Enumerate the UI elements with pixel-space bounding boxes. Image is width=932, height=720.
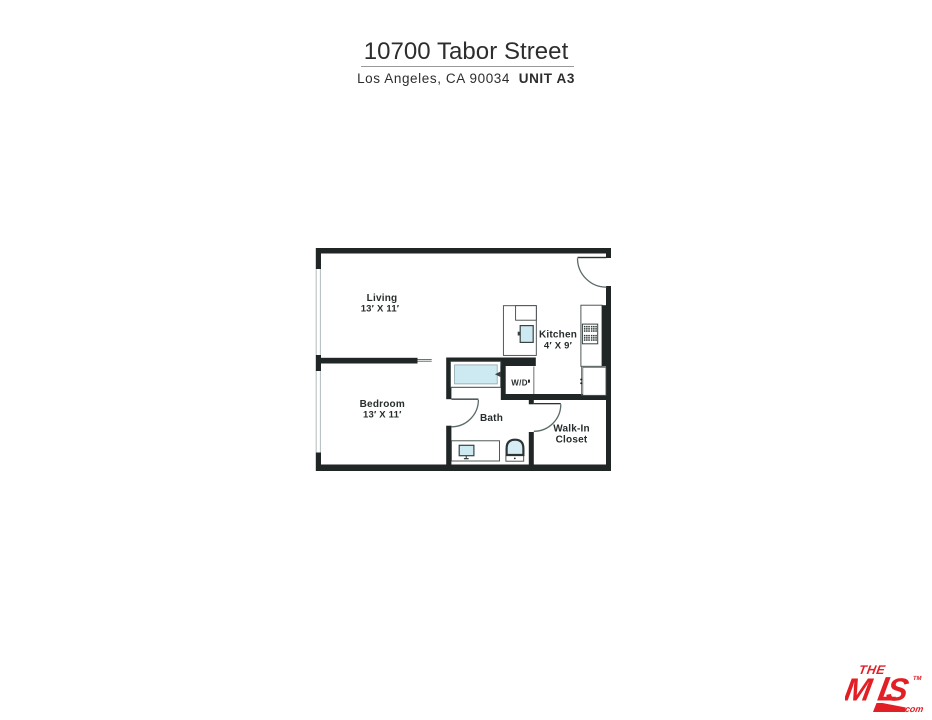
svg-text:Bath: Bath xyxy=(480,413,503,424)
svg-text:Bedroom: Bedroom xyxy=(360,399,405,410)
svg-text:.com: .com xyxy=(902,704,925,714)
svg-text:M: M xyxy=(845,672,876,708)
svg-text:Kitchen: Kitchen xyxy=(539,330,577,341)
svg-text:Living: Living xyxy=(367,293,398,304)
svg-text:Walk-In: Walk-In xyxy=(553,423,590,434)
svg-text:Closet: Closet xyxy=(556,435,588,446)
svg-text:13′ X 11′: 13′ X 11′ xyxy=(361,304,400,315)
svg-text:W/D: W/D xyxy=(511,379,528,388)
svg-text:13′ X 11′: 13′ X 11′ xyxy=(363,409,402,420)
svg-text:4′ X 9′: 4′ X 9′ xyxy=(544,340,573,351)
svg-text:TM: TM xyxy=(912,676,922,682)
